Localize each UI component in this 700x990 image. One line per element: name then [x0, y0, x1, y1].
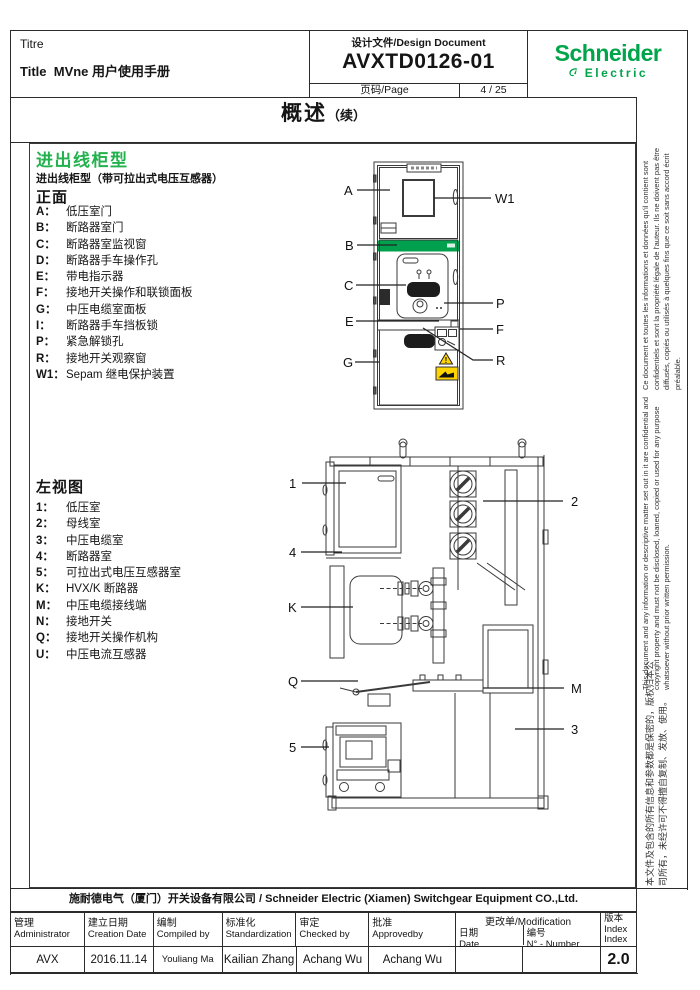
legend-item: D：断路器手车操作孔: [36, 253, 193, 269]
legend-item: 4：断路器室: [36, 549, 181, 565]
title-value: MVne 用户使用手册: [54, 64, 170, 79]
callout-label: F: [496, 322, 504, 337]
callout-label: G: [343, 355, 353, 370]
legend-item: C：断路器室监视窗: [36, 237, 193, 253]
callout-label: 5: [289, 740, 296, 755]
page-number: 4 / 25: [460, 84, 527, 97]
page-border-left: [10, 30, 11, 975]
callout-label: 2: [571, 494, 578, 509]
footer-col-compiled-by: 编制Compiled by: [154, 913, 223, 946]
standardization-value: Kailian Zhang: [223, 947, 297, 972]
callout-label: P: [496, 296, 505, 311]
callout-label: B: [345, 238, 354, 253]
legend-item: 3：中压电缆室: [36, 533, 181, 549]
checked-by-value: Achang Wu: [297, 947, 370, 972]
cable-panel-handle: [404, 334, 435, 348]
front-view-legend: A：低压室门 B：断路器室门 C：断路器室监视窗 D：断路器手车操作孔 E：带电…: [36, 204, 193, 383]
sidebar-bottom-line: [636, 888, 688, 889]
legend-item: K：HVX/K 断路器: [36, 581, 181, 597]
confidentiality-note-zh: 本文件及包含的所有信息和参数都是保密的，版权归本公司所有，未经许可不得擅自复制、…: [644, 658, 686, 886]
side-view-legend: 1：低压室 2：母线室 3：中压电缆室 4：断路器室 5：可拉出式电压互感器室 …: [36, 500, 181, 663]
front-view-diagram: ! A W1 B C P E F G R: [335, 155, 525, 415]
page-border-bottom: [10, 973, 638, 974]
footer-col-checked-by: 审定Checked by: [296, 913, 369, 946]
callout-label: E: [345, 314, 354, 329]
breaker-handle: [407, 282, 440, 297]
legend-item: E：带电指示器: [36, 269, 193, 285]
document-title: Title MVne 用户使用手册: [20, 61, 170, 80]
header-title-cell: Titre Title MVne 用户使用手册: [10, 30, 310, 97]
modification-date-header: 日期Date: [456, 925, 523, 945]
page-label: 页码/Page: [310, 84, 460, 97]
design-document-label: 设计文件/Design Document: [310, 35, 527, 50]
company-line: 施耐德电气（厦门）开关设备有限公司 / Schneider Electric (…: [10, 888, 637, 912]
legend-item: M：中压电缆接线端: [36, 598, 181, 614]
page-title-bar: 概述（续）: [10, 97, 637, 143]
page-border-right: [687, 30, 688, 890]
callout-label: K: [288, 600, 297, 615]
legend-item: P：紧急解锁孔: [36, 334, 193, 350]
index-value: 2.0: [601, 947, 636, 972]
administrator-value: AVX: [11, 947, 85, 972]
legend-item: G：中压电缆室面板: [36, 302, 193, 318]
section-subheading: 进出线柜型（带可拉出式电压互感器）: [36, 170, 223, 186]
compiled-by-value: Youliang Ma: [154, 947, 223, 972]
title-key: Title: [20, 64, 47, 79]
footer-header-row: 管理Administrator 建立日期Creation Date 编制Comp…: [11, 913, 636, 947]
green-band: [378, 241, 459, 252]
side-view-heading: 左视图: [36, 476, 84, 497]
footer-table: 管理Administrator 建立日期Creation Date 编制Comp…: [10, 912, 637, 973]
document-page: Titre Title MVne 用户使用手册 设计文件/Design Docu…: [0, 0, 700, 990]
legend-item: F：接地开关操作和联锁面板: [36, 285, 193, 301]
footer-value-row: AVX 2016.11.14 Youliang Ma Kailian Zhang…: [11, 947, 636, 972]
callout-label: C: [344, 278, 353, 293]
approved-by-value: Achang Wu: [369, 947, 456, 972]
header-docnumber-cell: 设计文件/Design Document AVXTD0126-01 页码/Pag…: [310, 30, 528, 97]
callout-label: Q: [288, 674, 298, 689]
brand-cell: Schneider Electric: [528, 30, 688, 97]
titre-label: Titre: [20, 37, 44, 51]
schneider-logo-text: Schneider: [528, 40, 688, 67]
schneider-symbol-icon: [568, 67, 579, 79]
confidentiality-note-fr: Ce document et toutes les informations e…: [641, 134, 687, 390]
legend-item: A：低压室门: [36, 204, 193, 220]
legend-item: Q：接地开关操作机构: [36, 630, 181, 646]
modification-date-value: [456, 947, 523, 972]
footer-col-approved-by: 批准Approvedby: [369, 913, 456, 946]
legend-item: I：断路器手车挡板锁: [36, 318, 193, 334]
legend-item: 1：低压室: [36, 500, 181, 516]
sidebar-divider: [636, 97, 637, 890]
callout-label: W1: [495, 191, 515, 206]
document-number: AVXTD0126-01: [310, 50, 527, 74]
svg-text:!: !: [445, 356, 448, 365]
page-title: 概述: [281, 102, 327, 125]
callout-label: 4: [289, 545, 296, 560]
callout-label: R: [496, 353, 505, 368]
legend-item: U：中压电流互感器: [36, 647, 181, 663]
callout-label: M: [571, 681, 582, 696]
schneider-logo-subtext: Electric: [528, 66, 688, 80]
legend-item: B：断路器室门: [36, 220, 193, 236]
modification-number-header: 编号N° - Number: [523, 925, 600, 945]
confidentiality-note-en: This document and any information or des…: [641, 396, 687, 690]
callout-label: 3: [571, 722, 578, 737]
footer-col-index: 版本IndexIndex: [601, 913, 636, 946]
section-heading: 进出线柜型: [36, 146, 129, 171]
footer-col-standardization: 标准化Standardization: [223, 913, 297, 946]
modification-header: 更改单/Modification: [456, 913, 600, 925]
footer-col-administrator: 管理Administrator: [11, 913, 85, 946]
hazard-label: [436, 367, 458, 380]
legend-item: 5：可拉出式电压互感器室: [36, 565, 181, 581]
legend-item: N：接地开关: [36, 614, 181, 630]
legend-item: 2：母线室: [36, 516, 181, 532]
header-table: Titre Title MVne 用户使用手册 设计文件/Design Docu…: [10, 30, 688, 97]
modification-number-value: [523, 947, 601, 972]
footer-col-creation-date: 建立日期Creation Date: [85, 913, 154, 946]
footer-col-modification: 更改单/Modification 日期Date 编号N° - Number: [456, 913, 601, 946]
callout-label: A: [344, 183, 353, 198]
legend-item: W1：Sepam 继电保护装置: [36, 367, 193, 383]
creation-date-value: 2016.11.14: [85, 947, 154, 972]
page-title-suffix: （续）: [327, 108, 366, 123]
page-row: 页码/Page 4 / 25: [310, 83, 527, 97]
side-view-diagram: 1 2 4 K Q M 3 5: [280, 430, 595, 825]
callout-label: 1: [289, 476, 296, 491]
legend-item: R：接地开关观察窗: [36, 351, 193, 367]
